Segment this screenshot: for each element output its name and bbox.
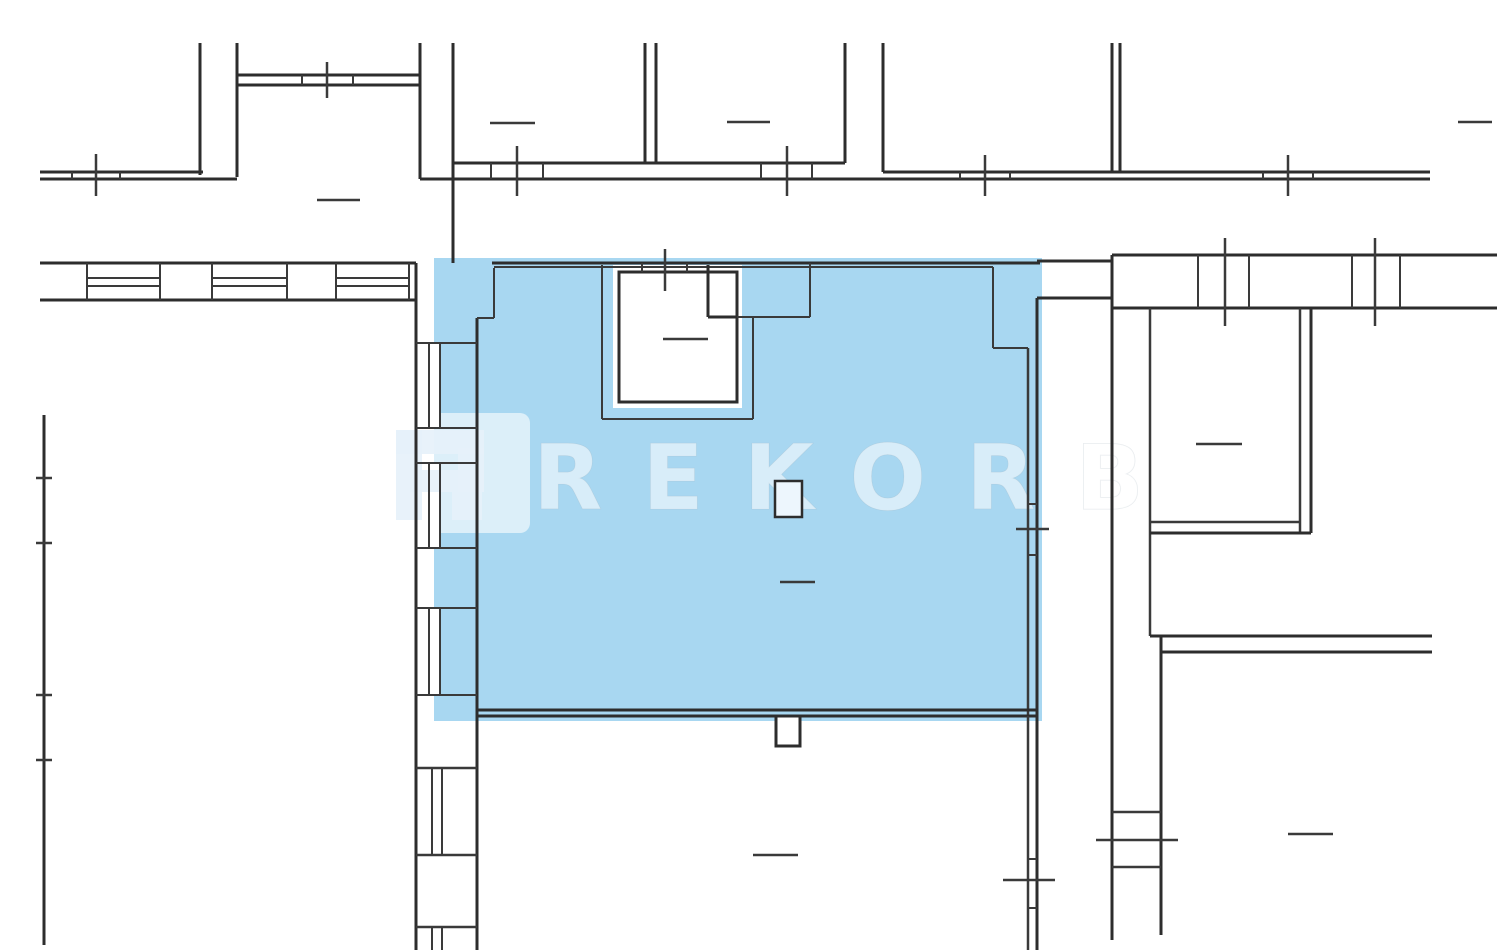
floorplan-svg: REKORB (0, 0, 1500, 950)
fixture-box (776, 716, 800, 746)
white-area (212, 263, 287, 300)
floorplan-page: REKORB (0, 0, 1500, 950)
fixture-box (775, 481, 802, 517)
watermark-text: REKORB (533, 426, 1184, 531)
rekorb-logo-r-icon (410, 470, 484, 492)
fixture-box (619, 272, 737, 402)
white-area (416, 768, 477, 855)
white-area (416, 927, 477, 950)
white-area (87, 263, 160, 300)
white-area (336, 263, 409, 300)
